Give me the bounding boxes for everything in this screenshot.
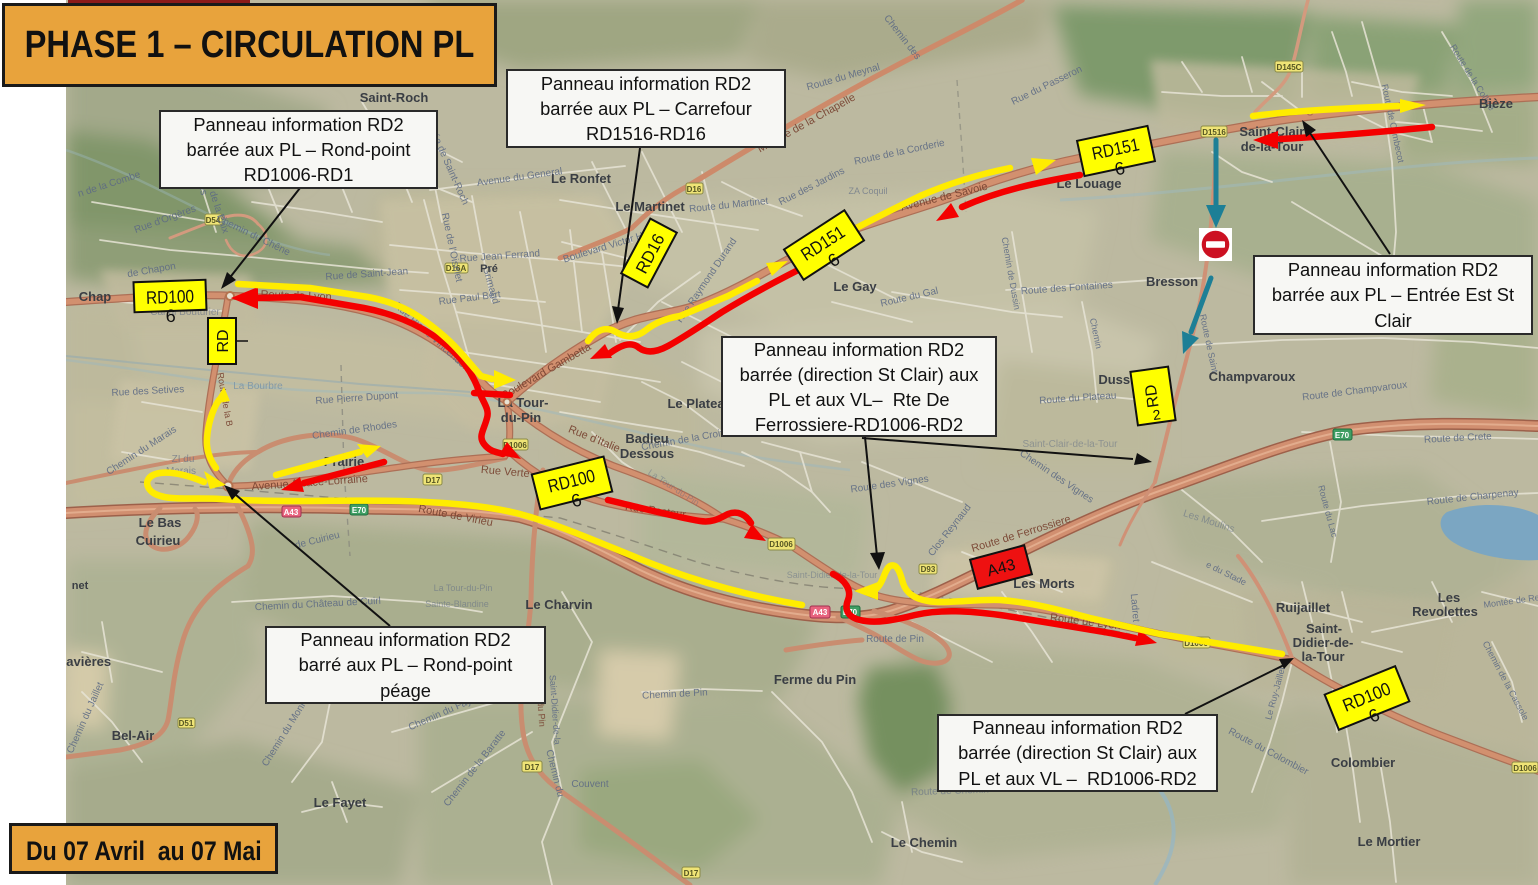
svg-text:Colombier: Colombier — [1331, 755, 1395, 770]
svg-text:Davières: Davières — [57, 654, 111, 669]
svg-text:Badieu: Badieu — [625, 431, 668, 446]
svg-text:Le Gay: Le Gay — [833, 279, 877, 294]
svg-text:E70: E70 — [1335, 431, 1350, 440]
svg-text:Saint-: Saint- — [1306, 621, 1342, 636]
svg-text:Le Charvin: Le Charvin — [525, 597, 592, 612]
svg-text:Couvent: Couvent — [571, 779, 608, 790]
svg-text:6: 6 — [165, 306, 176, 326]
svg-text:Bresson: Bresson — [1146, 274, 1198, 289]
svg-text:D17: D17 — [684, 869, 699, 878]
svg-text:ZA Coquil: ZA Coquil — [848, 186, 887, 196]
svg-text:Dessous: Dessous — [620, 446, 674, 461]
svg-text:net: net — [72, 580, 89, 592]
svg-text:Chap: Chap — [79, 289, 112, 304]
svg-text:Le Bas: Le Bas — [139, 515, 182, 530]
svg-text:la-Tour: la-Tour — [1301, 649, 1344, 664]
svg-text:Ferme du Pin: Ferme du Pin — [774, 672, 856, 687]
svg-text:D1006: D1006 — [1513, 764, 1537, 773]
svg-text:Saint-Clair-de-la-Tour: Saint-Clair-de-la-Tour — [1022, 439, 1118, 450]
svg-text:RD: RD — [1142, 383, 1162, 408]
svg-text:Le Chemin: Le Chemin — [891, 835, 958, 850]
svg-text:Ruijaillet: Ruijaillet — [1276, 600, 1331, 615]
svg-text:ZI du: ZI du — [172, 454, 195, 465]
svg-text:D51: D51 — [179, 719, 194, 728]
svg-text:Le Fayet: Le Fayet — [314, 795, 367, 810]
svg-text:Les: Les — [1438, 590, 1460, 605]
svg-text:D17: D17 — [426, 476, 441, 485]
svg-text:Saint-Roch: Saint-Roch — [360, 90, 429, 105]
svg-text:RD: RD — [215, 329, 232, 352]
svg-text:Sainte-Blandine: Sainte-Blandine — [425, 599, 489, 609]
svg-text:D1516: D1516 — [1202, 128, 1226, 137]
svg-text:Le Mortier: Le Mortier — [1358, 834, 1421, 849]
svg-text:Pré: Pré — [480, 263, 498, 275]
svg-text:RD100: RD100 — [146, 286, 195, 308]
svg-text:Revolettes: Revolettes — [1412, 604, 1478, 619]
svg-text:Champvaroux: Champvaroux — [1209, 369, 1296, 384]
svg-text:D17: D17 — [525, 763, 540, 772]
svg-text:Didier-de-: Didier-de- — [1293, 635, 1354, 650]
svg-text:Le Ronfet: Le Ronfet — [551, 171, 612, 186]
svg-text:Le Martinet: Le Martinet — [615, 199, 685, 214]
svg-text:Bel-Air: Bel-Air — [112, 728, 155, 743]
svg-text:Route de Pin: Route de Pin — [866, 634, 924, 645]
svg-text:A43: A43 — [284, 508, 299, 517]
svg-text:D93: D93 — [921, 565, 936, 574]
svg-text:D1006: D1006 — [769, 540, 793, 549]
svg-text:E70: E70 — [352, 506, 367, 515]
svg-text:A43: A43 — [813, 608, 828, 617]
svg-text:Bièze: Bièze — [1479, 96, 1513, 111]
svg-text:D145C: D145C — [1277, 63, 1302, 72]
svg-text:La Bourbre: La Bourbre — [233, 381, 283, 392]
svg-text:Cuirieu: Cuirieu — [136, 533, 181, 548]
svg-text:La Tour-du-Pin: La Tour-du-Pin — [434, 583, 493, 593]
svg-text:D16: D16 — [687, 185, 702, 194]
svg-text:Les Morts: Les Morts — [1013, 576, 1074, 591]
svg-text:du-Pin: du-Pin — [501, 410, 541, 425]
